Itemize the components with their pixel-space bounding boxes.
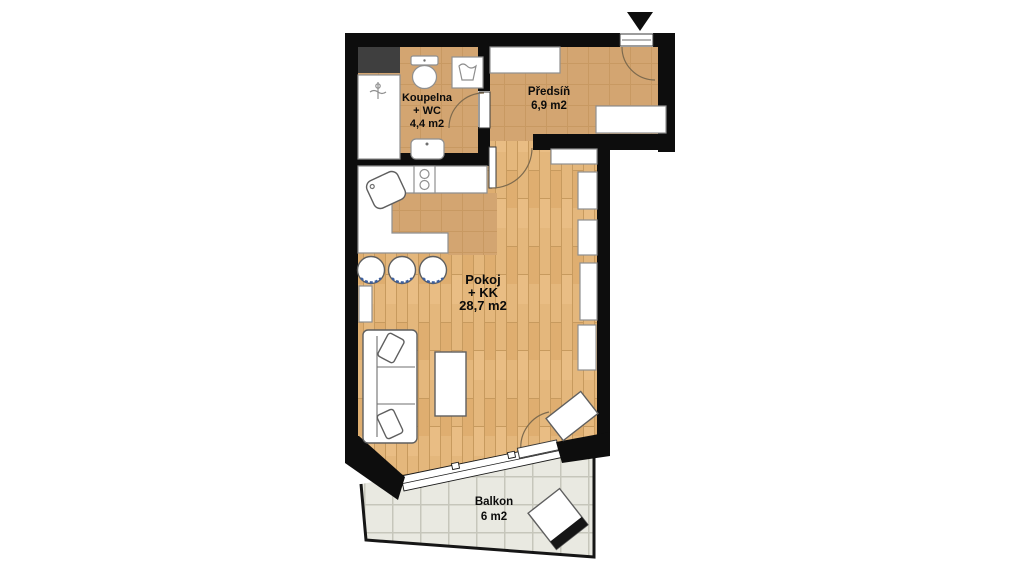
washbasin-icon [411,139,444,159]
sofa [363,330,417,443]
bar-stool [358,257,385,284]
wall-closet [580,263,597,320]
wall-bath-hall-lower [478,127,490,158]
wall-closet [578,220,597,255]
bar-stools [358,257,447,284]
label-predsin-name: Předsíň [528,86,570,98]
wall-closet [578,172,597,209]
hall-wardrobe [490,47,560,73]
label-predsin-area: 6,9 m2 [531,100,567,112]
washing-machine-icon [452,57,483,88]
radiator [359,286,372,322]
label-koupelna-name: Koupelna [402,92,453,104]
toilet-icon [411,56,438,89]
hallway-door-threshold [490,134,533,141]
label-koupelna-name2: + WC [413,105,441,117]
bar-stool [389,257,416,284]
hall-closet [596,106,666,133]
label-koupelna-area: 4,4 m2 [410,118,444,130]
label-balkon-area: 6 m2 [481,511,507,523]
bar-stool [420,257,447,284]
stove-icon [414,166,435,193]
shower-bathtub [358,75,400,159]
installation-shaft [358,47,400,73]
wall-room-right [597,145,610,438]
floor-plan-canvas: Koupelna + WC 4,4 m2 Předsíň 6,9 m2 Poko… [0,0,1024,576]
label-balkon-name: Balkon [475,496,513,508]
wall-closet [578,325,596,370]
wall-left [345,33,358,438]
floor-plan: Koupelna + WC 4,4 m2 Předsíň 6,9 m2 Poko… [0,0,1024,576]
label-pokoj-area: 28,7 m2 [459,298,507,313]
coffee-table [435,352,466,416]
cabinet-top-right [551,149,597,164]
